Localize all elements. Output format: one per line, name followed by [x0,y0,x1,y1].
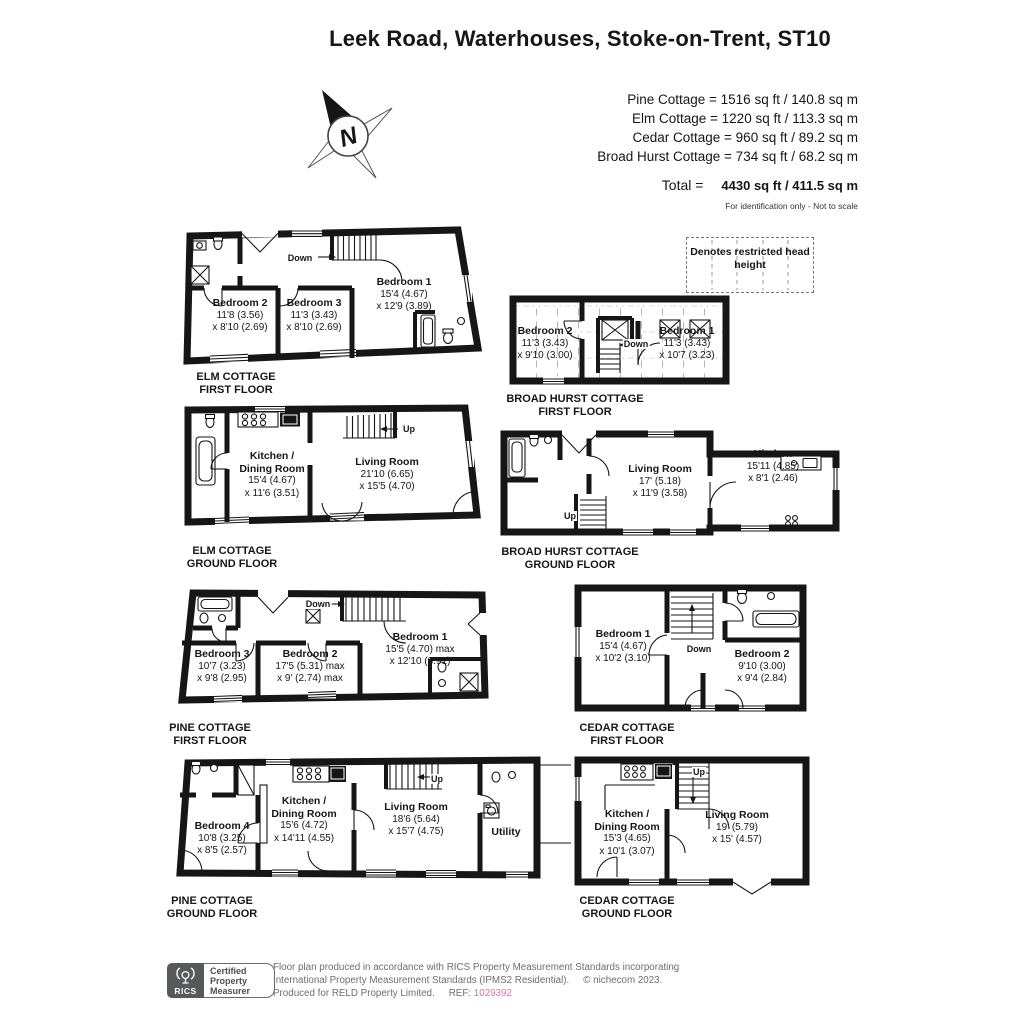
room-label-pine-gf-utility: Utility [491,826,520,839]
room-label-cedar-ff-bedroom2: Bedroom 2 9'10 (3.00) x 9'4 (2.84) [735,648,790,686]
page-title: Leek Road, Waterhouses, Stoke-on-Trent, … [300,26,860,52]
rics-certified-badge: RICS Certified Property Measurer [167,963,275,998]
room-label-bh-ff-bedroom1: Bedroom 1 11'3 (3.43) x 10'7 (3.23) [659,325,714,363]
scale-disclaimer: For identification only - Not to scale [725,201,858,211]
room-label-pine-gf-living: Living Room 18'6 (5.64) x 15'7 (4.75) [384,801,448,839]
total-value: 4430 sq ft / 411.5 sq m [721,178,858,193]
plan-pine-cottage-ground-floor [178,755,573,881]
floorplan-sheet: Leek Road, Waterhouses, Stoke-on-Trent, … [0,0,1020,1020]
footer-line-3: Produced for RELD Property Limited.REF: … [273,988,679,1001]
floorplan-drawing [180,403,485,531]
footer-disclaimer: Floor plan produced in accordance with R… [273,962,679,1000]
ref-number: 1029392 [474,988,512,999]
compass-north-icon: N [302,86,398,182]
kitchen-fixtures-icon [238,412,300,427]
footer-line-2: International Property Measurement Stand… [273,975,679,988]
room-label-pine-ff-bedroom2: Bedroom 2 17'5 (5.31) max x 9' (2.74) ma… [275,648,344,686]
room-label-pine-ff-bedroom3: Bedroom 3 10'7 (3.23) x 9'8 (2.95) [195,648,250,686]
room-label-bh-ff-bedroom2: Bedroom 2 11'3 (3.43) x 9'10 (3.00) [517,325,572,363]
french-doors-icon [733,877,771,894]
room-label-elm-gf-kitchen: Kitchen / Dining Room 15'4 (4.67) x 11'6… [239,450,304,500]
rooflight-icon [306,609,320,623]
room-label-elm-gf-living: Living Room 21'10 (6.65) x 15'5 (4.70) [355,456,419,494]
certified-property-measurer-label: Certified Property Measurer [204,963,275,998]
plan-caption-pine-ground: PINE COTTAGE GROUND FLOOR [167,895,257,921]
stair-label-up: Up [402,424,416,434]
summary-line: Elm Cottage = 1220 sq ft / 113.3 sq m [597,109,858,128]
room-label-bh-gf-kitchen: Kitchen 15'11 (4.85) x 8'1 (2.46) [747,448,799,486]
rics-lyre-icon [167,965,204,987]
room-label-elm-ff-bedroom1: Bedroom 1 15'4 (4.67) x 12'9 (3.89) [376,276,431,314]
plan-caption-cedar-ground: CEDAR COTTAGE GROUND FLOOR [579,895,674,921]
stair-label-up: Up [692,767,706,777]
total-label: Total = [662,177,704,193]
room-label-pine-ff-bedroom1: Bedroom 1 15'5 (4.70) max x 12'10 (3.91) [385,631,454,669]
stair-label-down: Down [623,339,650,349]
room-label-elm-ff-bedroom2: Bedroom 2 11'8 (3.56) x 8'10 (2.69) [212,297,267,335]
plan-elm-cottage-ground-floor [180,403,485,531]
plan-caption-elm-first: ELM COTTAGE FIRST FLOOR [196,371,275,397]
stair-label-down: Down [287,253,314,263]
room-label-pine-gf-kitchen: Kitchen / Dining Room 15'6 (4.72) x 14'1… [271,795,336,845]
plan-caption-bh-ground: BROAD HURST COTTAGE GROUND FLOOR [501,546,638,572]
room-label-cedar-ff-bedroom1: Bedroom 1 15'4 (4.67) x 10'2 (3.10) [595,628,650,666]
rics-wordmark: RICS [167,986,204,996]
wardrobe-icon [238,765,254,795]
summary-line: Broad Hurst Cottage = 734 sq ft / 68.2 s… [597,147,858,166]
window-icon [543,377,564,386]
plan-caption-elm-ground: ELM COTTAGE GROUND FLOOR [187,545,277,571]
room-label-pine-gf-bedroom4: Bedroom 4 10'8 (3.25) x 8'5 (2.57) [195,820,250,858]
boundary-tie-lines [537,765,571,843]
room-label-elm-ff-bedroom3: Bedroom 3 11'3 (3.43) x 8'10 (2.69) [286,297,341,335]
plan-caption-bh-first: BROAD HURST COTTAGE FIRST FLOOR [506,393,643,419]
restricted-height-legend: Denotes restricted head height [686,237,814,293]
plan-caption-cedar-first: CEDAR COTTAGE FIRST FLOOR [579,722,674,748]
summary-line: Pine Cottage = 1516 sq ft / 140.8 sq m [597,90,858,109]
stair-label-up: Up [430,774,444,784]
summary-line: Cedar Cottage = 960 sq ft / 89.2 sq m [597,128,858,147]
plan-caption-pine-first: PINE COTTAGE FIRST FLOOR [169,722,251,748]
stair-label-down: Down [305,599,332,609]
legend-text: Denotes restricted head height [687,246,813,272]
footer-line-1: Floor plan produced in accordance with R… [273,962,679,975]
total-row: Total = 4430 sq ft / 411.5 sq m [662,177,858,193]
area-summary: Pine Cottage = 1516 sq ft / 140.8 sq m E… [597,90,858,166]
ref-label: REF: [449,988,471,999]
stair-label-down: Down [686,644,713,654]
room-label-cedar-gf-living: Living Room 19' (5.79) x 15' (4.57) [705,809,769,847]
copyright-text: © nichecom 2023. [583,975,662,986]
room-label-cedar-gf-kitchen: Kitchen / Dining Room 15'3 (4.65) x 10'1… [594,808,659,858]
room-label-bh-gf-living: Living Room 17' (5.18) x 11'9 (3.58) [628,463,692,501]
rics-logo: RICS [167,963,204,998]
floorplan-drawing [178,755,573,881]
stair-label-up: Up [563,511,577,521]
